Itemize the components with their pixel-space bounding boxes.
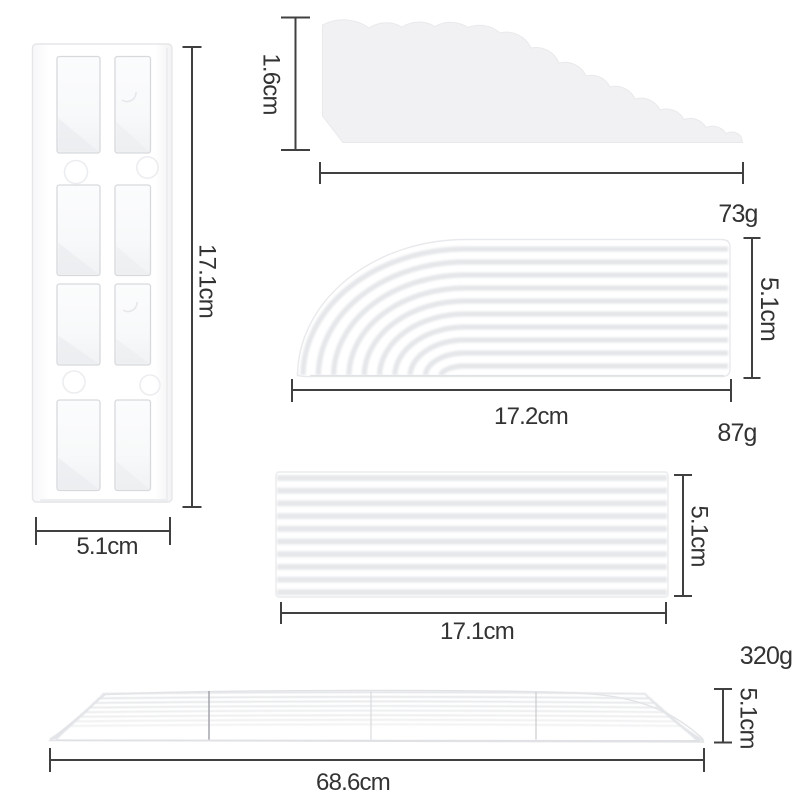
- svg-text:73g: 73g: [718, 200, 757, 228]
- svg-text:5.1cm: 5.1cm: [735, 687, 762, 748]
- svg-text:17.1cm: 17.1cm: [440, 618, 514, 645]
- svg-text:17.2cm: 17.2cm: [494, 403, 568, 430]
- svg-text:68.6cm: 68.6cm: [316, 769, 390, 796]
- svg-text:5.1cm: 5.1cm: [76, 533, 137, 560]
- svg-text:1.6cm: 1.6cm: [258, 53, 285, 114]
- svg-text:5.1cm: 5.1cm: [686, 505, 713, 566]
- svg-text:320g: 320g: [740, 642, 792, 670]
- svg-text:17.1cm: 17.1cm: [194, 244, 221, 318]
- svg-text:87g: 87g: [717, 419, 756, 447]
- svg-text:5.1cm: 5.1cm: [755, 277, 783, 341]
